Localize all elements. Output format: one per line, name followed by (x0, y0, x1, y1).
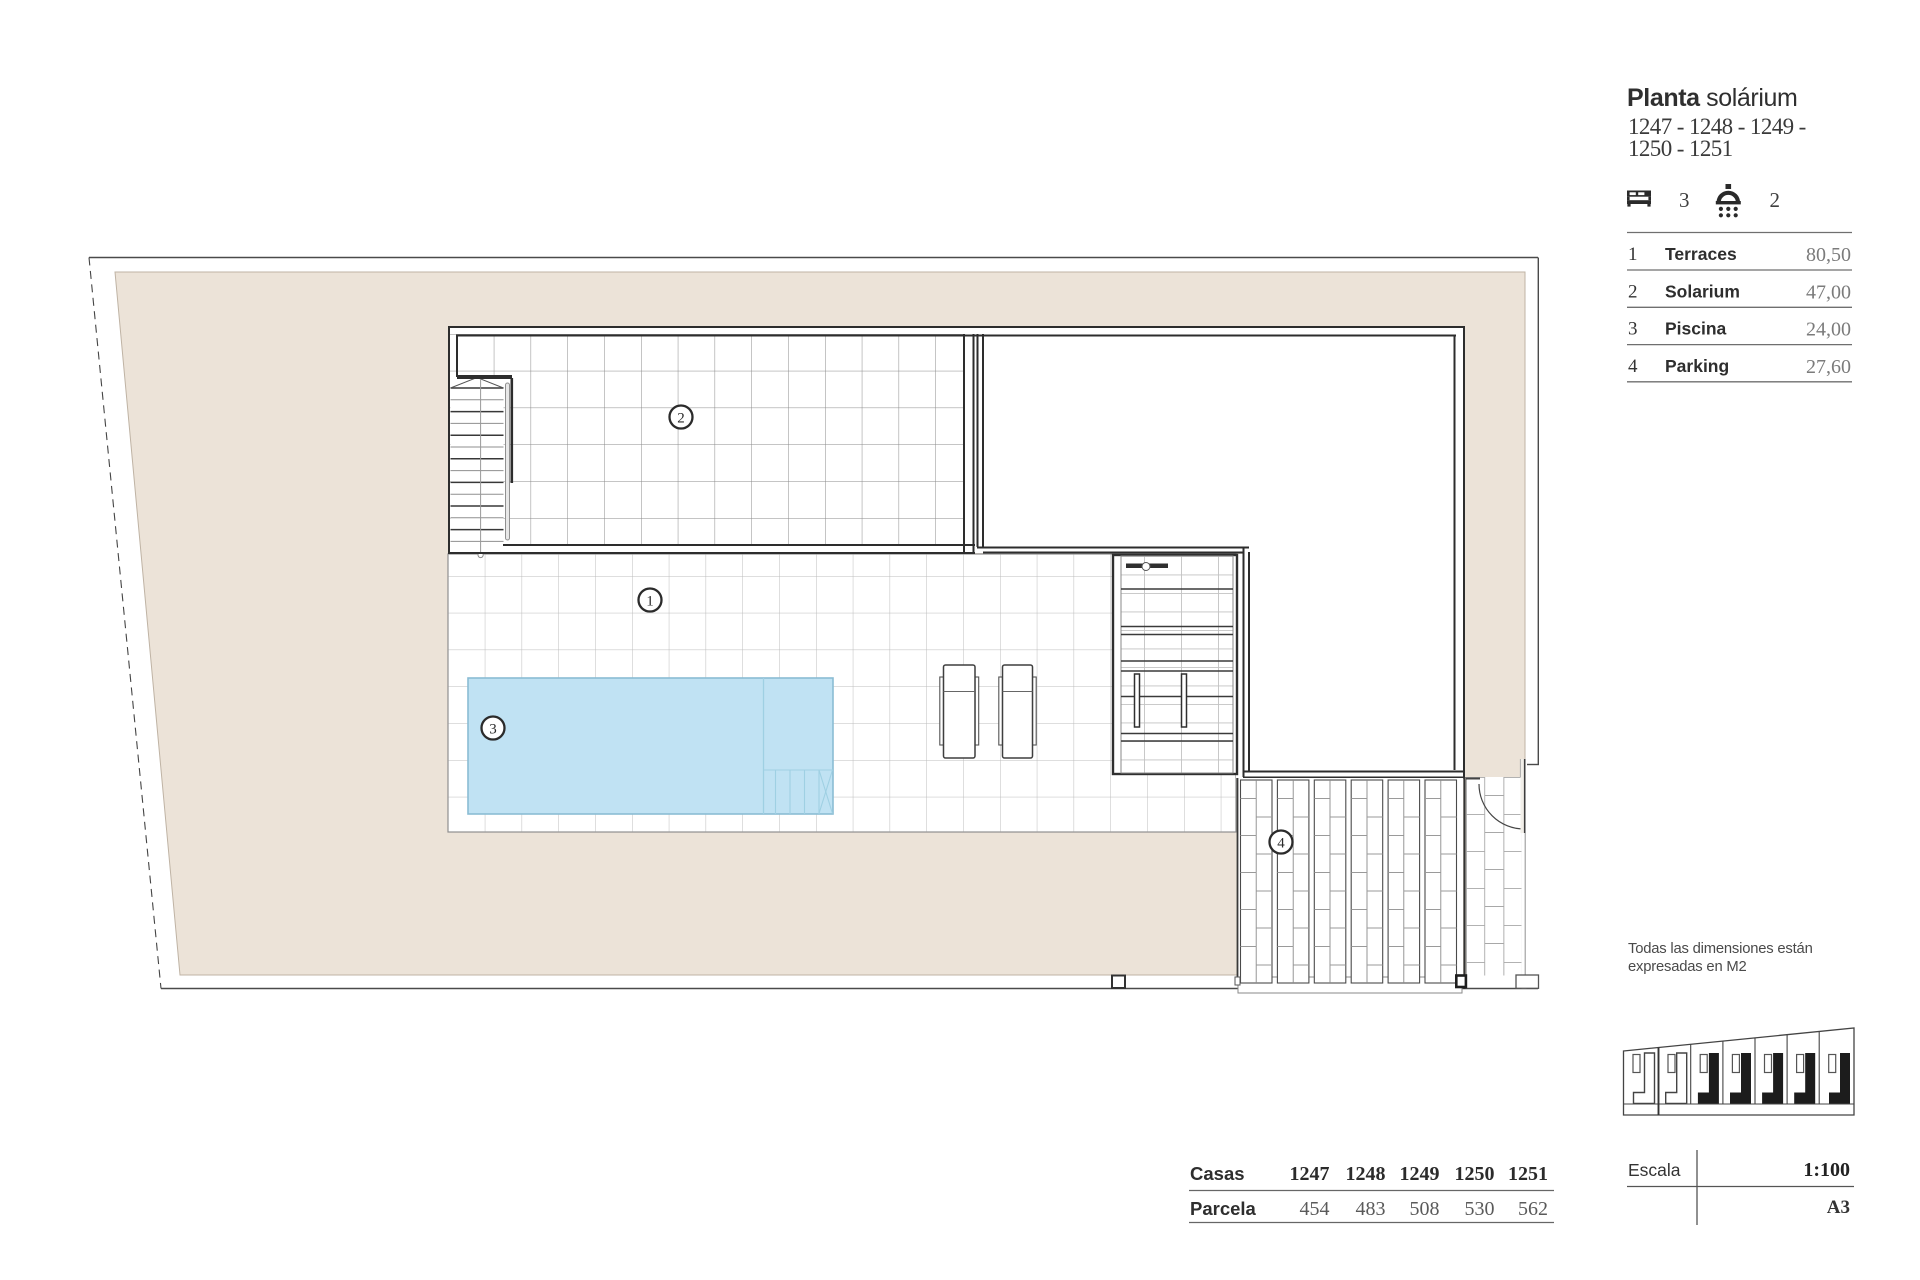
svg-text:483: 483 (1356, 1198, 1386, 1220)
svg-text:3: 3 (489, 722, 497, 738)
svg-text:1249: 1249 (1400, 1163, 1440, 1185)
svg-text:Terraces: Terraces (1665, 244, 1737, 264)
svg-text:1:100: 1:100 (1803, 1159, 1850, 1181)
svg-text:27,60: 27,60 (1806, 356, 1851, 378)
svg-text:47,00: 47,00 (1806, 281, 1851, 303)
svg-text:1: 1 (1628, 244, 1638, 265)
svg-text:Piscina: Piscina (1665, 319, 1727, 339)
svg-text:508: 508 (1410, 1198, 1440, 1220)
svg-text:Parcela: Parcela (1190, 1198, 1257, 1219)
svg-text:4: 4 (1628, 356, 1638, 377)
svg-text:1250: 1250 (1455, 1163, 1495, 1185)
svg-text:2: 2 (1770, 188, 1781, 212)
svg-text:2: 2 (677, 411, 685, 427)
svg-text:Solarium: Solarium (1665, 281, 1740, 301)
svg-text:4: 4 (1277, 836, 1285, 852)
svg-text:Todas las dimensiones están: Todas las dimensiones están (1628, 941, 1813, 957)
svg-text:530: 530 (1465, 1198, 1495, 1220)
svg-text:80,50: 80,50 (1806, 244, 1851, 266)
svg-text:1247: 1247 (1290, 1163, 1330, 1185)
svg-text:562: 562 (1518, 1198, 1548, 1220)
svg-text:1248: 1248 (1346, 1163, 1386, 1185)
svg-text:454: 454 (1300, 1198, 1330, 1220)
svg-text:2: 2 (1628, 281, 1638, 302)
svg-text:1: 1 (646, 594, 654, 610)
svg-text:1251: 1251 (1508, 1163, 1548, 1185)
svg-text:Parking: Parking (1665, 356, 1729, 376)
svg-text:1250 - 1251: 1250 - 1251 (1628, 136, 1733, 161)
svg-text:Escala: Escala (1628, 1160, 1681, 1180)
svg-text:A3: A3 (1827, 1197, 1850, 1218)
svg-text:expresadas en M2: expresadas en M2 (1628, 959, 1747, 975)
svg-text:3: 3 (1679, 188, 1690, 212)
svg-text:Casas: Casas (1190, 1163, 1245, 1184)
svg-text:24,00: 24,00 (1806, 319, 1851, 341)
svg-text:Planta solárium: Planta solárium (1627, 84, 1797, 112)
svg-text:3: 3 (1628, 319, 1638, 340)
